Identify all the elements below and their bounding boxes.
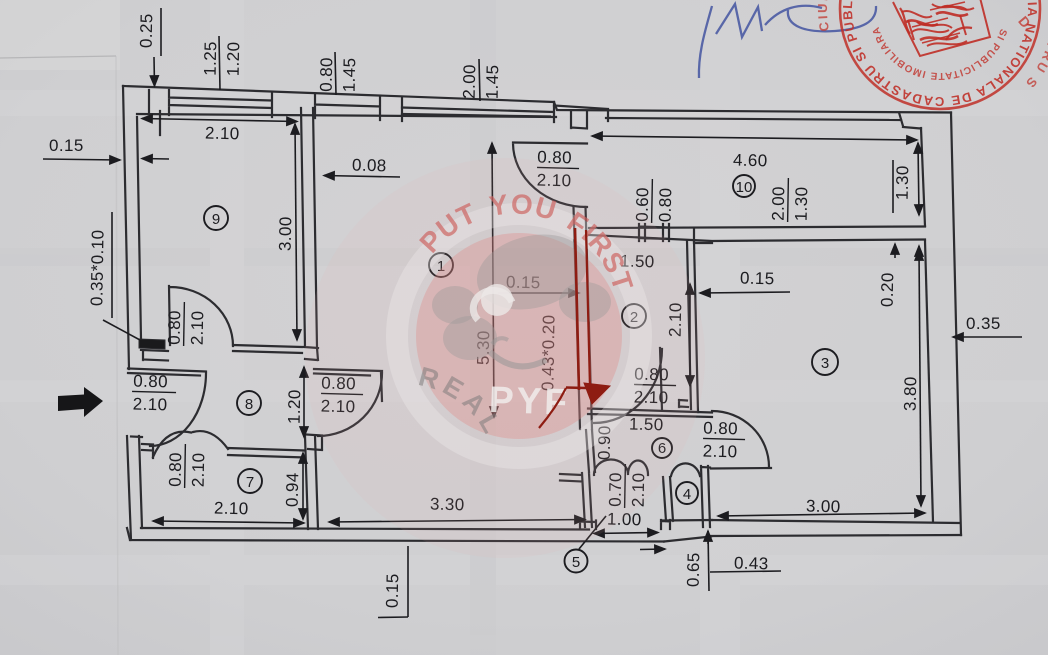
svg-text:0.08: 0.08: [352, 156, 387, 176]
svg-text:1.25: 1.25: [201, 41, 221, 76]
svg-text:2.10: 2.10: [189, 452, 209, 487]
svg-text:8: 8: [245, 396, 253, 413]
svg-text:7: 7: [246, 474, 254, 491]
svg-text:1.30: 1.30: [893, 165, 913, 200]
svg-text:2.10: 2.10: [214, 499, 249, 519]
svg-text:3.00: 3.00: [276, 216, 296, 251]
svg-text:1.45: 1.45: [340, 57, 360, 92]
svg-text:0.80: 0.80: [317, 57, 337, 92]
svg-text:0.15: 0.15: [383, 573, 403, 608]
svg-text:1.45: 1.45: [483, 64, 503, 99]
svg-text:0.80: 0.80: [166, 452, 186, 487]
svg-text:3.00: 3.00: [806, 497, 841, 517]
svg-text:3.80: 3.80: [901, 376, 921, 411]
svg-text:0.80: 0.80: [133, 371, 168, 391]
svg-text:0.80: 0.80: [656, 187, 676, 222]
svg-text:0.25: 0.25: [137, 13, 157, 48]
svg-text:1.20: 1.20: [224, 41, 244, 76]
svg-text:0.15: 0.15: [740, 269, 775, 289]
svg-text:3: 3: [821, 355, 829, 372]
svg-text:2.00: 2.00: [460, 64, 480, 99]
svg-text:0.94: 0.94: [283, 472, 303, 507]
svg-text:4: 4: [683, 486, 691, 503]
svg-text:0.43: 0.43: [734, 554, 769, 574]
svg-text:0.35*0.10: 0.35*0.10: [87, 229, 107, 306]
svg-text:0.65: 0.65: [684, 552, 704, 587]
svg-text:0.35: 0.35: [966, 314, 1001, 333]
svg-text:1.20: 1.20: [285, 389, 305, 424]
svg-text:2.10: 2.10: [188, 310, 208, 345]
svg-text:0.80: 0.80: [165, 310, 185, 345]
svg-text:4.60: 4.60: [733, 151, 768, 171]
svg-text:2.10: 2.10: [133, 394, 168, 414]
svg-text:10: 10: [736, 179, 753, 196]
svg-text:1.30: 1.30: [792, 186, 812, 221]
svg-text:0.15: 0.15: [49, 136, 84, 155]
svg-text:2.10: 2.10: [703, 441, 738, 461]
svg-text:5: 5: [572, 554, 580, 571]
svg-text:2.00: 2.00: [769, 186, 789, 221]
svg-text:0.80: 0.80: [703, 418, 738, 438]
svg-text:2.10: 2.10: [205, 124, 240, 144]
svg-text:0.20: 0.20: [878, 272, 898, 307]
svg-text:9: 9: [212, 211, 220, 228]
